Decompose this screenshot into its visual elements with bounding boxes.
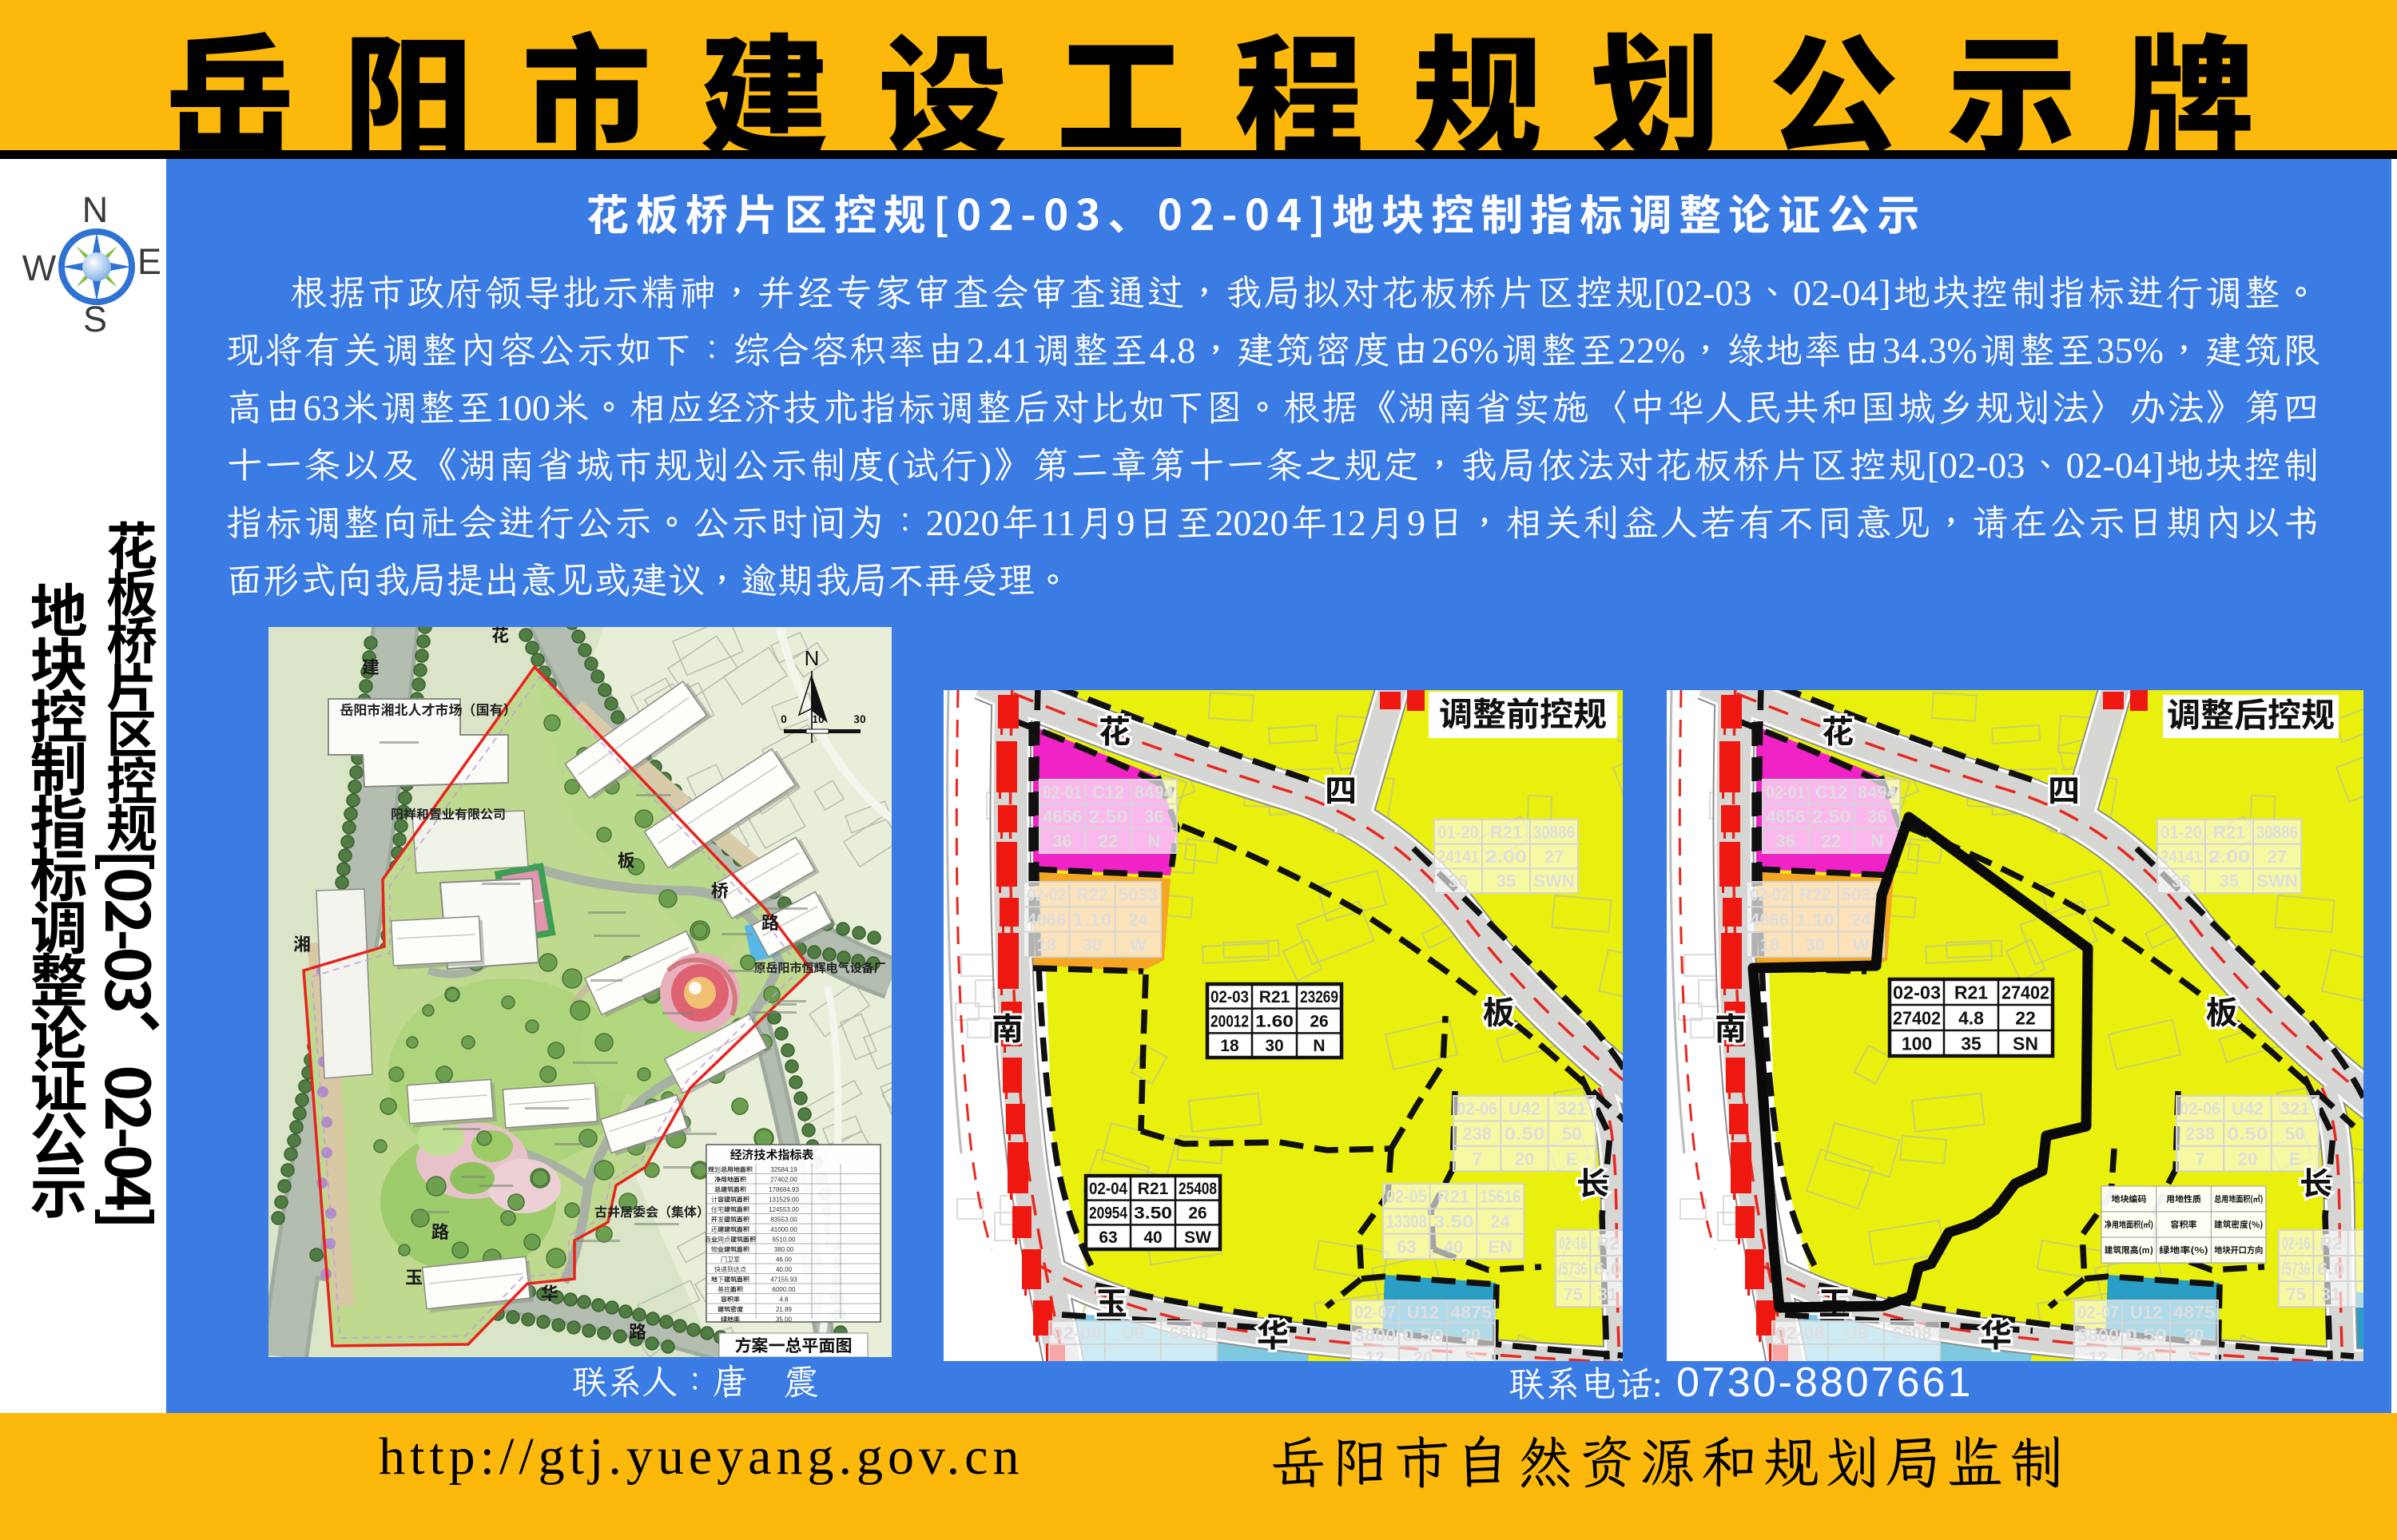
svg-text:27: 27 [1544,847,1564,867]
svg-text:178684.93: 178684.93 [769,1186,799,1193]
svg-text:计容建筑面积: 计容建筑面积 [711,1196,750,1205]
svg-text:/5736: /5736 [1559,1259,1587,1279]
svg-text:C12: C12 [1815,782,1847,802]
svg-text:玉: 玉 [1819,1278,1850,1324]
svg-text:3.50: 3.50 [1134,1205,1172,1223]
svg-text:R21: R21 [2213,822,2245,842]
svg-text:开发建筑面积: 开发建筑面积 [711,1216,750,1224]
svg-text:W: W [1130,935,1147,955]
svg-text:C12: C12 [1092,782,1124,802]
svg-text:古井居委会（集体）: 古井居委会（集体） [594,1201,710,1220]
svg-text:U9: U9 [1845,1323,1867,1343]
svg-text:20: 20 [2137,1348,2156,1361]
svg-text:40: 40 [1143,1228,1162,1247]
svg-text:地块编码: 地块编码 [2111,1193,2146,1205]
svg-text:N: N [1870,832,1883,851]
svg-text:0.50: 0.50 [2228,1124,2268,1144]
svg-text:6608: 6608 [1170,1323,1209,1343]
svg-text:02-05: 02-05 [1386,1187,1427,1207]
svg-text:35.00: 35.00 [776,1316,793,1324]
svg-text:路: 路 [629,1318,646,1344]
svg-text:花: 花 [1099,706,1131,752]
svg-text:R21: R21 [1259,988,1290,1006]
svg-text:20: 20 [2184,1325,2204,1345]
svg-text:124553.00: 124553.00 [769,1206,799,1213]
svg-text:住宅建筑面积: 住宅建筑面积 [711,1205,750,1214]
svg-text:长: 长 [1576,1158,1608,1205]
svg-text:30: 30 [1265,1037,1283,1055]
svg-text:板: 板 [618,847,635,872]
svg-text:26: 26 [1188,1205,1206,1223]
svg-text:31: 31 [1598,1284,1617,1304]
svg-text:U42: U42 [2232,1099,2264,1119]
svg-text:绿地率(%): 绿地率(%) [2160,1244,2208,1256]
svg-text:5033: 5033 [1842,885,1881,905]
svg-text:18: 18 [1759,935,1779,955]
svg-text:R22: R22 [1076,885,1108,905]
svg-text:02-03: 02-03 [1210,988,1249,1006]
svg-text:阳祥和置业有限公司: 阳祥和置业有限公司 [391,804,506,823]
svg-text:20: 20 [1461,1325,1481,1345]
svg-text:4656: 4656 [1043,807,1082,827]
svg-text:4875: 4875 [1450,1302,1492,1322]
svg-text:01-20: 01-20 [2160,822,2202,842]
svg-text:02-03: 02-03 [1893,982,1941,1002]
svg-text:36: 36 [1775,832,1795,851]
svg-text:N: N [1147,832,1160,851]
svg-text:建筑限高(m): 建筑限高(m) [2105,1244,2153,1256]
svg-text:35: 35 [1497,871,1516,891]
svg-text:27402: 27402 [1893,1007,1941,1028]
svg-text:63: 63 [1099,1228,1117,1247]
svg-text:12: 12 [2089,1348,2108,1361]
svg-text:02-06: 02-06 [1457,1099,1497,1119]
svg-text:地下建筑面积: 地下建筑面积 [711,1276,750,1284]
svg-text:地块开口方向: 地块开口方向 [2214,1244,2263,1256]
svg-text:四: 四 [2048,765,2080,812]
svg-text:0.50: 0.50 [1505,1124,1545,1144]
svg-text:36: 36 [1052,832,1071,851]
svg-text:321: 321 [1557,1099,1587,1119]
svg-text:27402.00: 27402.00 [770,1177,797,1184]
svg-text:238: 238 [1462,1124,1492,1144]
svg-text:商业网点建筑面积: 商业网点建筑面积 [705,1236,757,1244]
svg-text:W: W [22,248,57,288]
svg-text:02-01: 02-01 [1043,782,1082,802]
svg-text:26: 26 [1310,1013,1328,1031]
svg-text:绿地率: 绿地率 [721,1316,740,1324]
svg-text:建筑密度: 建筑密度 [717,1305,743,1314]
svg-text:321: 321 [2280,1099,2310,1119]
svg-text:02-04: 02-04 [1089,1180,1127,1198]
svg-text:2.50: 2.50 [1812,807,1851,827]
svg-text:路: 路 [761,909,779,935]
svg-text:36: 36 [1144,807,1163,827]
svg-text:238: 238 [2185,1124,2215,1144]
svg-text:基底面积: 基底面积 [718,1285,744,1294]
svg-text:2.00: 2.00 [1485,847,1527,867]
svg-text:南: 南 [992,1003,1024,1050]
svg-text:6.0: 6.0 [1594,1259,1622,1279]
svg-text:桥: 桥 [711,877,729,903]
svg-text:40: 40 [1444,1236,1463,1256]
svg-text:用地性质: 用地性质 [2166,1193,2201,1205]
svg-text:23269: 23269 [1300,988,1338,1006]
svg-text:12: 12 [1365,1348,1385,1361]
svg-text:18: 18 [1220,1037,1239,1055]
svg-text:U12: U12 [2130,1302,2162,1322]
svg-text:物业建筑面积: 物业建筑面积 [711,1245,750,1254]
svg-text:四: 四 [1325,765,1357,812]
svg-text:4066: 4066 [1027,910,1066,930]
svg-text:调整后控规: 调整后控规 [2167,690,2335,737]
svg-text:20: 20 [2238,1149,2257,1169]
svg-text:30886: 30886 [2256,822,2298,842]
svg-text:华: 华 [541,1280,559,1305]
svg-text:22: 22 [1099,832,1118,851]
svg-text:R22: R22 [1799,885,1831,905]
svg-text:S: S [2188,1348,2200,1361]
svg-text:3800: 3800 [2077,1325,2119,1345]
svg-text:13308: 13308 [1386,1212,1427,1232]
svg-text:R21: R21 [1138,1180,1169,1198]
svg-text:6000.00: 6000.00 [773,1286,796,1293]
svg-text:27402: 27402 [2001,982,2049,1002]
svg-text:SWN: SWN [1533,871,1574,891]
svg-text:R21: R21 [1954,982,1988,1002]
svg-text:EN: EN [1488,1236,1513,1256]
svg-text:131529.00: 131529.00 [769,1197,799,1204]
svg-text:/5736: /5736 [2282,1259,2310,1279]
svg-text:1.10: 1.10 [1796,910,1835,930]
svg-text:30886: 30886 [1533,822,1575,842]
svg-text:总建筑面积: 总建筑面积 [714,1185,747,1194]
svg-text:还建建筑面积: 还建建筑面积 [711,1225,750,1234]
svg-text:经济技术指标表: 经济技术指标表 [729,1146,813,1163]
svg-text:20: 20 [1515,1149,1534,1169]
svg-text:36: 36 [1867,807,1886,827]
svg-text:花: 花 [1822,706,1854,752]
svg-text:容积率: 容积率 [2171,1218,2197,1231]
svg-text:8494: 8494 [1135,782,1175,802]
svg-text:22: 22 [2015,1007,2036,1028]
svg-text:02-16: 02-16 [1559,1233,1587,1253]
svg-text:U12: U12 [1407,1302,1439,1322]
svg-text:02-07: 02-07 [1354,1302,1396,1322]
svg-text:板: 板 [2206,987,2238,1034]
svg-text:02-02: 02-02 [1027,885,1066,905]
svg-text:36: 36 [2172,871,2191,891]
svg-text:R2: R2 [1596,1233,1619,1253]
svg-text:02-01: 02-01 [1766,782,1805,802]
svg-text:湘: 湘 [293,931,311,956]
svg-text:路: 路 [431,1218,449,1244]
svg-text:6608: 6608 [1893,1323,1932,1343]
svg-text:R2: R2 [2319,1233,2342,1253]
svg-text:1.60: 1.60 [1255,1013,1294,1031]
svg-text:10: 10 [812,711,825,726]
svg-text:5033: 5033 [1119,885,1158,905]
svg-text:N: N [805,646,820,670]
svg-text:4066: 4066 [1750,910,1789,930]
svg-text:0.50: 0.50 [1402,1325,1444,1345]
svg-text:6510.00: 6510.00 [773,1236,796,1244]
svg-text:100: 100 [1902,1033,1932,1054]
svg-text:S: S [1465,1348,1477,1361]
svg-text:N: N [1313,1037,1325,1055]
svg-text:净用地面积(㎡): 净用地面积(㎡) [2105,1218,2153,1231]
svg-text:规划总用地面积: 规划总用地面积 [707,1165,753,1174]
svg-text:35: 35 [2220,871,2239,891]
svg-text:83553.00: 83553.00 [770,1217,797,1224]
svg-text:南: 南 [1715,1003,1747,1050]
svg-text:27: 27 [2268,847,2287,867]
svg-text:31: 31 [2321,1284,2340,1304]
svg-text:4.8: 4.8 [779,1296,789,1304]
svg-text:32584.19: 32584.19 [770,1166,797,1173]
svg-text:7: 7 [1473,1149,1482,1169]
svg-text:30: 30 [853,711,866,726]
svg-text:21.89: 21.89 [776,1306,793,1313]
svg-text:02-16: 02-16 [2282,1233,2310,1253]
svg-text:8494: 8494 [1858,782,1898,802]
svg-text:R21: R21 [1490,822,1522,842]
svg-text:SW: SW [1184,1228,1211,1247]
svg-text:华: 华 [1257,1310,1289,1356]
svg-text:01-20: 01-20 [1437,822,1479,842]
svg-text:1.10: 1.10 [1073,910,1112,930]
svg-text:建筑密度(%): 建筑密度(%) [2214,1218,2263,1231]
svg-text:岳阳市湘北人才市场（国有）: 岳阳市湘北人才市场（国有） [340,699,517,719]
svg-text:02-02: 02-02 [1750,885,1789,905]
svg-text:0: 0 [781,711,787,726]
svg-text:3.50: 3.50 [1433,1212,1474,1232]
svg-text:板: 板 [1483,987,1515,1034]
svg-text:玉: 玉 [1095,1278,1127,1324]
svg-text:02-06: 02-06 [2180,1099,2220,1119]
svg-text:花: 花 [491,627,509,647]
svg-text:2.00: 2.00 [2208,847,2250,867]
svg-text:46.00: 46.00 [776,1256,793,1264]
svg-text:长: 长 [2300,1158,2331,1205]
svg-text:4.8: 4.8 [1958,1007,1984,1028]
svg-text:0.50: 0.50 [2125,1325,2167,1345]
svg-text:华: 华 [1980,1310,2012,1356]
svg-text:02-08: 02-08 [1775,1323,1825,1343]
svg-text:18: 18 [1036,935,1055,955]
svg-text:20012: 20012 [1210,1013,1249,1031]
svg-text:40.00: 40.00 [776,1266,793,1273]
svg-text:22: 22 [1822,832,1841,851]
svg-text:24141: 24141 [2160,847,2202,867]
svg-text:47155.93: 47155.93 [770,1276,797,1284]
svg-text:50: 50 [2285,1124,2304,1144]
svg-text:20: 20 [1413,1348,1433,1361]
svg-text:方案一总平面图: 方案一总平面图 [735,1333,853,1357]
svg-text:25408: 25408 [1179,1180,1217,1198]
svg-text:30: 30 [1806,935,1825,955]
svg-text:总用地面积(㎡): 总用地面积(㎡) [2214,1193,2263,1205]
svg-text:快递到达点: 快递到达点 [714,1265,746,1274]
svg-text:24: 24 [1128,910,1148,930]
svg-text:380.00: 380.00 [774,1246,794,1253]
svg-text:R21: R21 [1437,1187,1469,1207]
svg-text:50: 50 [1562,1124,1581,1144]
svg-text:02-08: 02-08 [1052,1323,1102,1343]
svg-text:4656: 4656 [1766,807,1805,827]
svg-text:6.0: 6.0 [2317,1259,2345,1279]
svg-text:SN: SN [2013,1033,2038,1054]
svg-text:75: 75 [2286,1284,2305,1304]
svg-text:75: 75 [1563,1284,1582,1304]
svg-text:净用地面积: 净用地面积 [714,1176,747,1185]
svg-text:35: 35 [1961,1033,1982,1054]
svg-text:20954: 20954 [1089,1205,1127,1223]
svg-text:3800: 3800 [1354,1325,1396,1345]
svg-text:24: 24 [1490,1212,1510,1232]
svg-text:N: N [82,189,109,230]
svg-text:调整前控规: 调整前控规 [1439,690,1607,736]
svg-text:玉: 玉 [405,1264,423,1289]
svg-text:容积率: 容积率 [721,1296,740,1304]
svg-text:2.50: 2.50 [1089,807,1128,827]
svg-text:15616: 15616 [1480,1187,1520,1207]
svg-text:41000.00: 41000.00 [770,1226,797,1233]
svg-text:24141: 24141 [1437,847,1479,867]
svg-text:W: W [1853,935,1870,955]
svg-text:原岳阳市恒辉电气设备厂: 原岳阳市恒辉电气设备厂 [753,959,885,976]
svg-text:36: 36 [1449,871,1468,891]
svg-text:30: 30 [1083,935,1102,955]
svg-text:7: 7 [2196,1149,2205,1169]
svg-text:建: 建 [362,653,380,679]
svg-text:U9: U9 [1122,1323,1144,1343]
svg-text:门卫室: 门卫室 [721,1256,740,1264]
svg-text:4875: 4875 [2173,1302,2215,1322]
svg-text:U42: U42 [1509,1099,1540,1119]
svg-text:02-07: 02-07 [2077,1302,2119,1322]
svg-text:63: 63 [1397,1236,1416,1256]
svg-text:24: 24 [1851,910,1871,930]
svg-text:SWN: SWN [2256,871,2297,891]
